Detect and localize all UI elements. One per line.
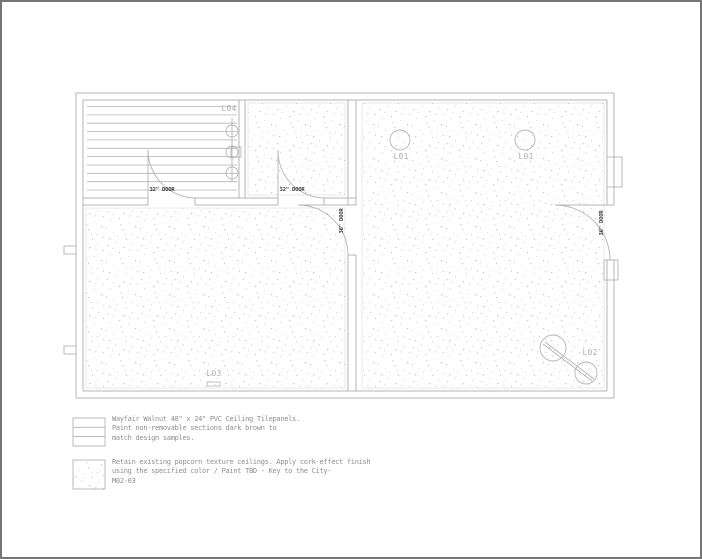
fixture-label-l02: L02 — [582, 348, 597, 357]
legend-note-walnut-panels: Wayfair Walnut 48" x 24" PVC Ceiling Til… — [112, 415, 300, 443]
stipple-region-right-room — [362, 103, 604, 388]
legend-note-line: Paint non-removable sections dark brown … — [112, 424, 300, 433]
legend-note-line: Wayfair Walnut 48" x 24" PVC Ceiling Til… — [112, 415, 300, 424]
stipple-region-lower-left-room — [86, 208, 345, 388]
door-label-mid-32: 32" DOOR — [280, 187, 305, 193]
door-label-mid-36: 36" DOOR — [339, 209, 345, 234]
ceiling-plan-sheet: L04 L01 L01 L02 L03 32" DOOR 32" DOOR 36… — [0, 0, 702, 559]
legend-note-popcorn-texture: Retain existing popcorn texture ceilings… — [112, 458, 370, 486]
stipple-region-middle-room — [248, 103, 345, 195]
legend-note-line: using the specified color / Paint TBD - … — [112, 467, 370, 476]
legend-swatch-popcorn-texture — [73, 460, 105, 489]
door-label-left-32: 32" DOOR — [150, 187, 175, 193]
fixture-label-l03: L03 — [206, 369, 221, 378]
ceiling-panel-stripes — [87, 107, 237, 191]
legend-note-line: Retain existing popcorn texture ceilings… — [112, 458, 370, 467]
door-label-right-36: 36" DOOR — [599, 211, 605, 236]
fixture-label-l01-left: L01 — [393, 152, 408, 161]
window-notch-left-upper — [64, 246, 76, 254]
room-label-l04: L04 — [221, 104, 236, 113]
legend-note-line: match design samples. — [112, 434, 300, 443]
legend-swatch-walnut-panels — [73, 418, 105, 446]
fixture-label-l01-right: L01 — [518, 152, 533, 161]
legend-note-line: M02-03 — [112, 477, 370, 486]
door-jamb-right — [604, 260, 618, 280]
window-notch-left-lower — [64, 346, 76, 354]
